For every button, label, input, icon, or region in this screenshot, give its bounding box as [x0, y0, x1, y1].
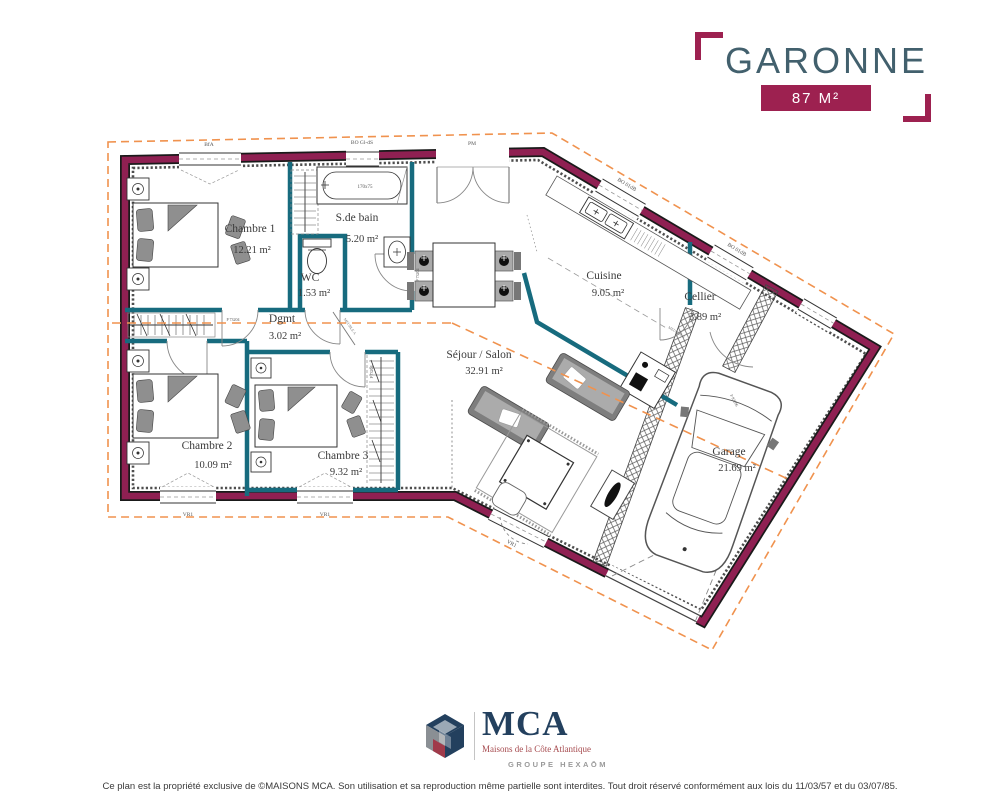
room-label-sejour: Séjour / Salon	[446, 349, 511, 361]
room-area-chambre2: 10.09 m²	[194, 460, 232, 471]
room-label-chambre2: Chambre 2	[182, 440, 233, 452]
logo-divider	[474, 712, 475, 760]
code-door-chambre3: P 73204	[369, 365, 374, 378]
logo-group: GROUPE HEXAŌM	[508, 760, 608, 769]
page: GARONNE 87 M²	[0, 0, 1000, 800]
code-window-chambre1: BfA	[204, 141, 214, 148]
logo-block: MCA Maisons de la Côte Atlantique GROUPE…	[424, 706, 644, 772]
code-entrance: PM	[468, 141, 476, 147]
washbasin-icon	[384, 237, 410, 267]
mca-cube-icon	[424, 712, 468, 760]
room-area-wc: 1.53 m²	[298, 288, 330, 299]
room-label-chambre1: Chambre 1	[225, 223, 276, 235]
bathtub-size-label: 170x75	[358, 185, 374, 190]
room-area-chambre1: 12.21 m²	[233, 245, 271, 256]
room-label-dgmt: Dgmt	[269, 313, 296, 325]
room-label-cellier: Cellier	[684, 291, 715, 303]
logo-brand: MCA	[482, 704, 569, 744]
room-label-cuisine: Cuisine	[586, 270, 621, 282]
logo-tagline: Maisons de la Côte Atlantique	[482, 744, 591, 754]
room-label-sdb: S.de bain	[336, 212, 379, 224]
code-vr-chambre3: VR1	[320, 512, 331, 518]
floor-plan: Chambre 1 12.21 m² S.de bain 5.20 m² WC …	[0, 0, 1000, 800]
code-window-bath: BO Gl-dS	[351, 140, 373, 146]
code-vr-chambre2: VR1	[183, 512, 194, 518]
room-label-wc: WC	[301, 272, 320, 284]
room-area-sejour: 32.91 m²	[465, 366, 503, 377]
room-label-chambre3: Chambre 3	[318, 450, 369, 462]
room-area-chambre3: 9.32 m²	[330, 467, 362, 478]
room-area-cellier: 3.89 m²	[689, 312, 721, 323]
footer-disclaimer: Ce plan est la propriété exclusive de ©M…	[0, 781, 1000, 792]
room-area-cuisine: 9.05 m²	[592, 288, 624, 299]
code-door-bath: P 73204	[415, 268, 420, 281]
code-door-chambre1: P 73204	[226, 317, 239, 322]
room-area-sdb: 5.20 m²	[346, 234, 378, 245]
room-area-dgmt: 3.02 m²	[269, 331, 301, 342]
room-label-garage: Garage	[712, 446, 745, 458]
room-area-garage: 21.69 m²	[718, 463, 756, 474]
